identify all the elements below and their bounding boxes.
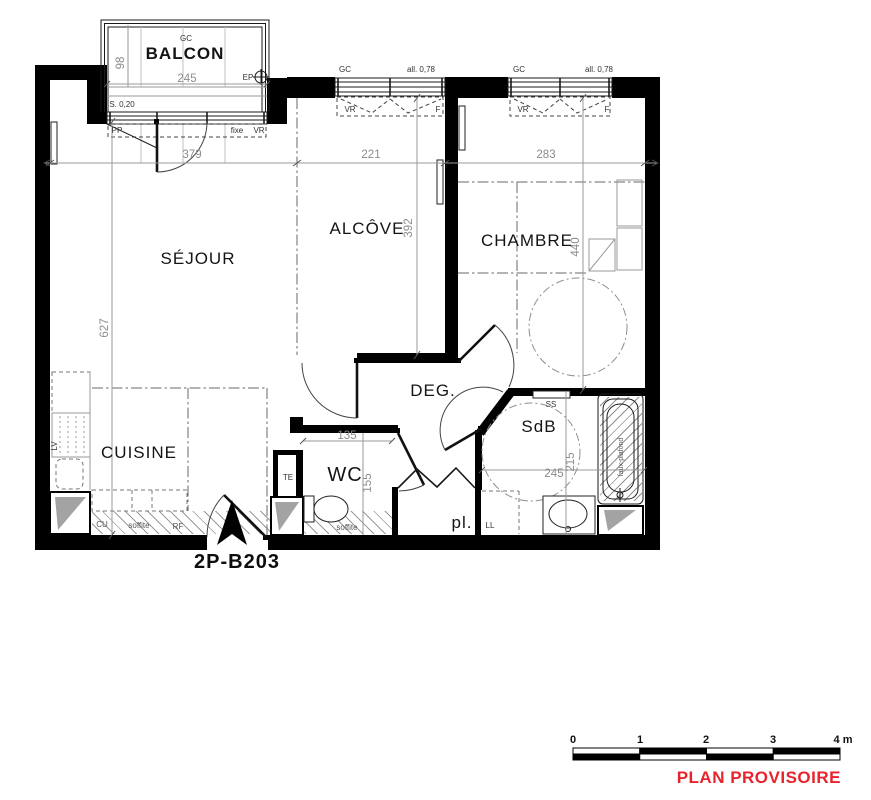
room-label-chambre: CHAMBRE [481,231,573,250]
wall-sdb-west [475,430,482,490]
label-ep: EP [243,73,254,82]
radiator-alcove [437,160,443,204]
hinge-wc [395,428,400,433]
label-ss: SS [546,400,557,409]
turning-circle-chambre [529,278,627,376]
scale-tick-0: 0 [570,734,576,746]
windows [107,78,612,148]
balcony-door-frame [107,112,267,124]
dim-chambre-width: 283 [536,149,555,161]
wall-top-pier-mid [445,77,508,98]
wall-te-right [296,450,303,497]
scale-tick-2: 2 [703,734,709,746]
room-label-alcove: ALCÔVE [330,219,405,238]
label-rf: RF [173,522,184,531]
door-arc-sejour [302,363,357,418]
scale-seg-3b [707,754,774,760]
kitchen-sink [56,459,83,489]
placard-folding-doors [398,468,475,488]
wall-sdb-angled [480,392,511,433]
scale-tick-1: 1 [637,734,643,746]
scale-bar: 0 1 2 3 4 m [570,734,853,760]
plan-drawing: BALCON GC 98 245 EP S. 0,20 PP fixe VR G… [0,0,871,800]
label-f-window-chambre: F [605,105,610,114]
label-gc-chambre: GC [513,65,525,74]
dim-sdb-depth: 215 [565,452,577,471]
label-ll: LL [486,521,495,530]
wall-bottom-left [35,535,207,550]
label-te: TE [283,473,293,482]
label-soffite-cuisine: soffite [128,521,150,530]
dim-sejour-depth: 627 [99,318,111,337]
door-leaf-wc [398,433,424,485]
label-faux-plafond: faux-plafond [618,438,625,477]
wall-sdb-north [508,388,645,396]
dim-sejour-width: 379 [182,149,201,161]
bed-fold-line [589,239,615,271]
dim-wc-depth: 155 [362,473,374,492]
toilet-bowl [314,496,348,522]
bed-part-1 [617,180,642,226]
entry-arrow [217,500,247,545]
ss-shelf [533,391,570,398]
door-arc-wc [399,485,424,491]
door-arc-chambre [495,325,514,387]
scale-seg-2b [640,754,707,760]
scale-seg-1b [573,754,640,760]
wall-balcony-pier-right [267,78,287,124]
unit-label: 2P-B203 [194,551,280,573]
scale-seg-1t [573,748,640,754]
kitchen-low-counter [92,490,187,511]
room-label-balcon: BALCON [146,44,225,63]
wall-top-sejour [287,77,335,98]
label-f-window-alcove: F [436,105,441,114]
wall-right [645,77,660,550]
label-vr-balcon: VR [253,126,264,135]
room-label-sejour: SÉJOUR [161,249,236,268]
scale-tick-4: 4 m [834,734,853,746]
label-allege-alcove: all. 0,78 [407,65,436,74]
label-vr-window-chambre: VR [517,105,528,114]
room-label-cuisine: CUISINE [101,443,177,462]
door-arc-balcony [157,122,207,172]
room-label-sdb: SdB [521,417,556,436]
room-label-deg: DEG. [410,381,456,400]
scale-seg-4t [773,748,840,754]
hinge-sejour [354,358,359,363]
dim-balcon-depth: 98 [115,57,127,70]
bed-part-2 [617,228,642,270]
label-balcon-step: S. 0,20 [109,100,135,109]
dim-wc-width: 135 [337,430,356,442]
dim-alcove-width: 221 [361,149,380,161]
label-lv: LV [50,441,59,451]
door-leaf-chambre [458,325,495,362]
dim-alcove-depth: 392 [403,218,415,237]
wall-te-left [273,450,278,497]
label-soffite-wc: soffite [336,523,358,532]
wall-placard-left [392,487,398,535]
washbasin-bowl [549,500,587,528]
scale-seg-2t [640,748,707,754]
wall-placard-right [475,487,481,535]
label-allege-chambre: all. 0,78 [585,65,614,74]
wall-alcove-chambre [445,98,458,362]
kitchen-cabinet-dashed [52,372,90,413]
scale-seg-3t [707,748,774,754]
label-gc-balcon: GC [180,34,192,43]
radiator-chambre [459,106,465,150]
radiator-sejour [51,122,57,164]
wall-alcove-south [357,353,458,363]
label-fixe: fixe [231,126,244,135]
door-arc-entry [207,495,224,537]
floor-plan: BALCON GC 98 245 EP S. 0,20 PP fixe VR G… [0,0,871,800]
window-alcove-casement [341,99,441,113]
label-vr-window-alcove: VR [344,105,355,114]
scale-seg-4b [773,754,840,760]
dim-sdb-width: 245 [544,468,563,480]
toilet-tank [304,496,314,522]
label-gc-alcove: GC [339,65,351,74]
status-stamp: PLAN PROVISOIRE [677,768,841,787]
dim-balcon-width: 245 [177,73,196,85]
wall-bottom-right [268,535,660,550]
room-label-wc: WC [327,464,362,486]
wall-top-left-notch [35,65,107,80]
label-pp: PP [112,126,123,135]
wall-left [35,65,50,550]
room-label-placard: pl. [452,513,473,532]
label-cu: CU [96,520,108,529]
scale-tick-3: 3 [770,734,776,746]
